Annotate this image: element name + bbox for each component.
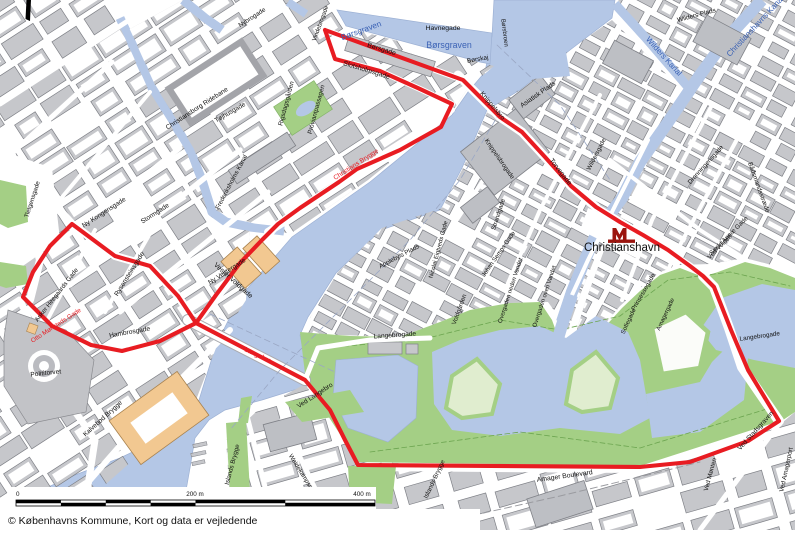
svg-text:200 m: 200 m [186, 491, 204, 498]
svg-text:© Københavns Kommune, Kort og: © Københavns Kommune, Kort og data er ve… [8, 515, 258, 527]
svg-text:0: 0 [16, 491, 20, 498]
svg-text:400 m: 400 m [353, 491, 371, 498]
svg-text:Børsgraven: Børsgraven [426, 40, 472, 50]
svg-text:Havnegade: Havnegade [426, 25, 461, 32]
svg-text:Christianshavn: Christianshavn [584, 242, 660, 254]
